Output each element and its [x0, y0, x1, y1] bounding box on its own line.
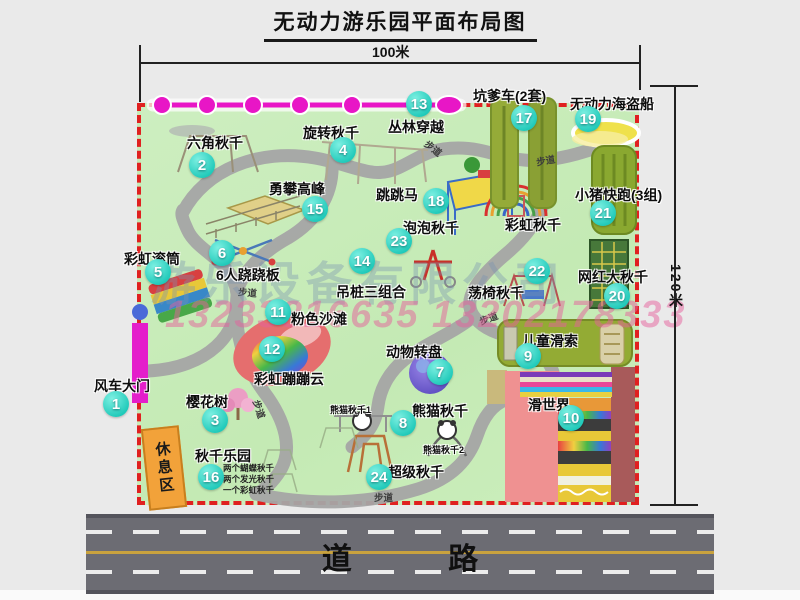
item-6-label: 6人跷跷板 — [216, 265, 280, 285]
path-label-5: 步道 — [374, 490, 393, 504]
swing-park-note-3: 一个彩虹秋千 — [223, 485, 274, 496]
item-1-badge: 1 — [103, 391, 129, 417]
item-8-badge: 8 — [390, 410, 416, 436]
item-23-badge: 23 — [386, 228, 412, 254]
item-5-badge: 5 — [145, 259, 171, 285]
item-11-badge: 11 — [265, 299, 291, 325]
road: 道 路 — [86, 514, 714, 594]
item-19-badge: 19 — [575, 106, 601, 132]
dimension-height-tick-top — [650, 85, 698, 87]
dimension-width-tick-right — [639, 45, 641, 90]
item-13-label: 丛林穿越 — [388, 117, 444, 137]
item-18-label: 跳跳马 — [376, 185, 418, 205]
item-4-badge: 4 — [330, 137, 356, 163]
panda-swing-1-label: 熊猫秋千1 — [330, 403, 371, 416]
item-17-badge: 17 — [511, 105, 537, 131]
item-9-badge: 9 — [515, 343, 541, 369]
item-18-badge: 18 — [423, 188, 449, 214]
item-2-badge: 2 — [189, 152, 215, 178]
dimension-width-label: 100米 — [372, 42, 409, 62]
item-12-label: 彩虹蹦蹦云 — [254, 369, 324, 389]
item-22-badge: 22 — [524, 258, 550, 284]
dimension-height-tick-bottom — [650, 504, 698, 506]
item-21-label: 小猪快跑(3组) — [575, 185, 662, 205]
swing-park-note-2: 两个发光秋千 — [223, 474, 274, 485]
item-17-label: 坑爹车(2套) — [473, 86, 546, 106]
item-21-badge: 21 — [590, 200, 616, 226]
item-20-badge: 20 — [604, 283, 630, 309]
item-24-label: 超级秋千 — [388, 462, 444, 482]
dimension-width-line — [140, 62, 640, 64]
item-13-badge: 13 — [406, 91, 432, 117]
item-8-label: 熊猫秋千 — [412, 401, 468, 421]
dimension-height-label: 120米 — [666, 264, 686, 309]
road-label: 道 路 — [86, 534, 714, 578]
item-24-badge: 24 — [366, 464, 392, 490]
item-15-badge: 15 — [302, 196, 328, 222]
swing-park-note-1: 两个蝴蝶秋千 — [223, 463, 274, 474]
page-title: 无动力游乐园平面布局图 — [264, 6, 537, 42]
item-12-badge: 12 — [259, 336, 285, 362]
item-7-label: 动物转盘 — [386, 342, 442, 362]
item-7-badge: 7 — [427, 359, 453, 385]
item-10-badge: 10 — [558, 405, 584, 431]
rainbow-swing-label: 彩虹秋千 — [505, 215, 561, 235]
item-3-badge: 3 — [202, 407, 228, 433]
panda-swing-2-label: 熊猫秋千2 — [423, 443, 464, 456]
title-wrap: 无动力游乐园平面布局图 — [0, 6, 800, 42]
dimension-height-line — [674, 86, 676, 506]
item-2-label: 六角秋千 — [187, 133, 243, 153]
item-14-badge: 14 — [349, 248, 375, 274]
item-6-badge: 6 — [209, 240, 235, 266]
item-22-label: 荡椅秋千 — [468, 283, 524, 303]
item-14-label: 吊桩三组合 — [336, 282, 406, 302]
item-23-label: 泡泡秋千 — [403, 218, 459, 238]
page: 无动力游乐园平面布局图 100米 120米 — [0, 0, 800, 600]
item-11-label: 粉色沙滩 — [291, 309, 347, 329]
dimension-width-tick-left — [139, 45, 141, 102]
item-16-badge: 16 — [198, 464, 224, 490]
